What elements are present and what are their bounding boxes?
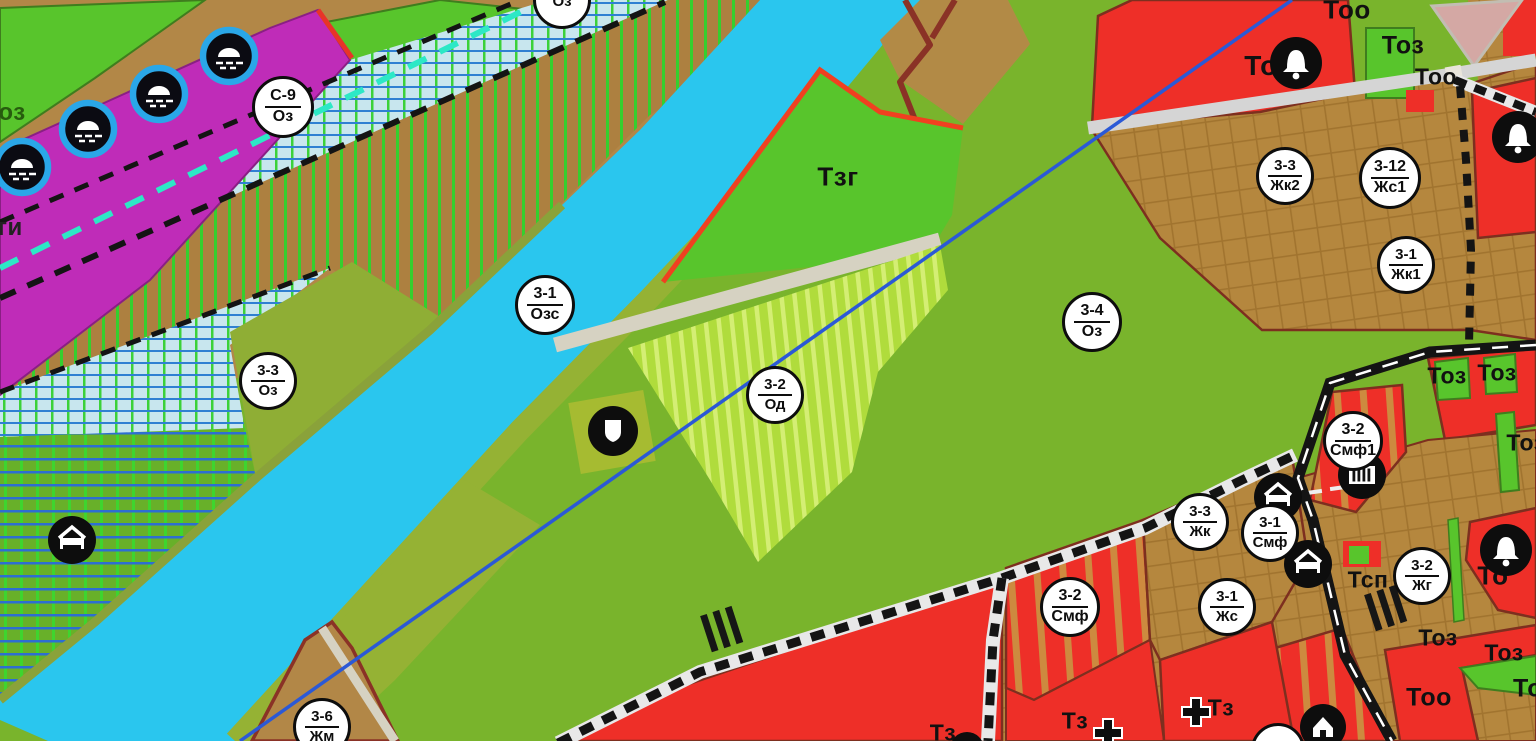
zone-code: 3-6 bbox=[305, 709, 340, 728]
area-label: То bbox=[1513, 675, 1536, 704]
zone-badge[interactable]: 3-1Жс bbox=[1198, 578, 1256, 636]
area-label: Тоз bbox=[1477, 360, 1516, 387]
area-label: ти bbox=[0, 214, 23, 242]
zone-code: 3-1 bbox=[1389, 247, 1424, 266]
zone-code: 3-1 bbox=[1210, 589, 1245, 608]
zone-category: Жк bbox=[1189, 523, 1210, 540]
bell-icon bbox=[1476, 520, 1536, 580]
zone-badge[interactable]: 3-1Жк1 bbox=[1377, 236, 1435, 294]
zone-badge[interactable]: 3-1Озс bbox=[515, 275, 575, 335]
zone-category: Смф bbox=[1051, 608, 1088, 626]
cross-icon bbox=[1078, 703, 1138, 741]
zone-code: С-9 bbox=[265, 88, 302, 108]
zone-badge[interactable]: 3-3Жк2 bbox=[1256, 147, 1314, 205]
bell-icon bbox=[1266, 33, 1326, 93]
house-icon bbox=[1293, 697, 1353, 741]
area-label: Тоо bbox=[1406, 684, 1452, 713]
zone-category: Смф bbox=[1253, 534, 1288, 551]
zone-badge[interactable]: 3-3Жк bbox=[1171, 493, 1229, 551]
zone-code: 3-2 bbox=[1335, 422, 1371, 442]
area-label: Тзг bbox=[817, 162, 858, 193]
hotel-icon bbox=[42, 510, 102, 570]
zone-code: 3-3 bbox=[1268, 158, 1303, 177]
zone-code: 3-1 bbox=[1253, 515, 1288, 534]
zone-code: 3-4 bbox=[1074, 303, 1110, 323]
zone-code: 3-3 bbox=[251, 363, 286, 382]
zone-code: 3-2 bbox=[758, 377, 793, 396]
map-markers-layer: С-9ОзОз3-1Озс3-3Оз3-2Од3-4Оз3-3Жк23-12Жс… bbox=[0, 0, 1536, 741]
water-icon bbox=[58, 99, 118, 159]
bell-icon bbox=[1488, 107, 1536, 167]
area-label: Тоз bbox=[1427, 363, 1466, 390]
map-canvas[interactable]: С-9ОзОз3-1Озс3-3Оз3-2Од3-4Оз3-3Жк23-12Жс… bbox=[0, 0, 1536, 741]
zone-code: 3-1 bbox=[527, 286, 563, 306]
zone-code: 3-12 bbox=[1371, 159, 1409, 179]
water-icon bbox=[0, 137, 52, 197]
zone-badge[interactable]: 3-3Оз bbox=[239, 352, 297, 410]
zone-badge[interactable]: 3-2Жг bbox=[1393, 547, 1451, 605]
zone-category: Оз bbox=[552, 0, 571, 10]
zone-category: Од bbox=[765, 396, 786, 413]
zone-category: Жс1 bbox=[1374, 179, 1406, 197]
zone-category: Жг bbox=[1412, 577, 1432, 594]
zone-badge[interactable]: Оз bbox=[533, 0, 591, 29]
zone-badge[interactable]: С-9Оз bbox=[252, 76, 314, 138]
water-icon bbox=[129, 64, 189, 124]
area-label: Тоо bbox=[1415, 64, 1457, 91]
triple-bars-icon bbox=[695, 598, 755, 658]
area-label: Тоз bbox=[1418, 625, 1457, 652]
zone-badge[interactable]: 3-6Жм bbox=[293, 698, 351, 741]
area-label: Тоо bbox=[1323, 0, 1371, 26]
zone-category: Оз bbox=[273, 108, 293, 126]
zone-badge[interactable]: 3-1Смф bbox=[1241, 504, 1299, 562]
area-label: Тоз bbox=[1382, 32, 1425, 61]
zone-code: 3-2 bbox=[1405, 558, 1440, 577]
zone-category: Оз bbox=[258, 382, 277, 399]
zone-category: Озс bbox=[531, 306, 560, 324]
zone-code: 3-3 bbox=[1183, 504, 1218, 523]
shield-icon bbox=[583, 401, 643, 461]
black-circle-icon bbox=[937, 719, 997, 741]
zone-badge[interactable]: 3-2Смф1 bbox=[1323, 411, 1383, 471]
zone-category: Жк1 bbox=[1391, 266, 1420, 283]
area-label: Тоз bbox=[1506, 430, 1536, 457]
zone-code: 3-2 bbox=[1052, 588, 1088, 608]
zone-badge[interactable]: 3-2Од bbox=[746, 366, 804, 424]
zone-category: Жк2 bbox=[1270, 177, 1299, 194]
zone-badge[interactable]: 3-4Оз bbox=[1062, 292, 1122, 352]
zone-category: Смф1 bbox=[1330, 442, 1376, 460]
cross-icon bbox=[1166, 682, 1226, 741]
area-label: Тоз bbox=[1484, 640, 1523, 667]
zone-category: Оз bbox=[1082, 323, 1102, 341]
zone-badge[interactable]: 3-12Жс1 bbox=[1359, 147, 1421, 209]
zone-category: Жм bbox=[310, 728, 335, 741]
area-label: оз bbox=[0, 99, 26, 127]
water-icon bbox=[199, 26, 259, 86]
zone-category: Жс bbox=[1216, 608, 1238, 625]
zone-badge[interactable]: 3-2Смф bbox=[1040, 577, 1100, 637]
